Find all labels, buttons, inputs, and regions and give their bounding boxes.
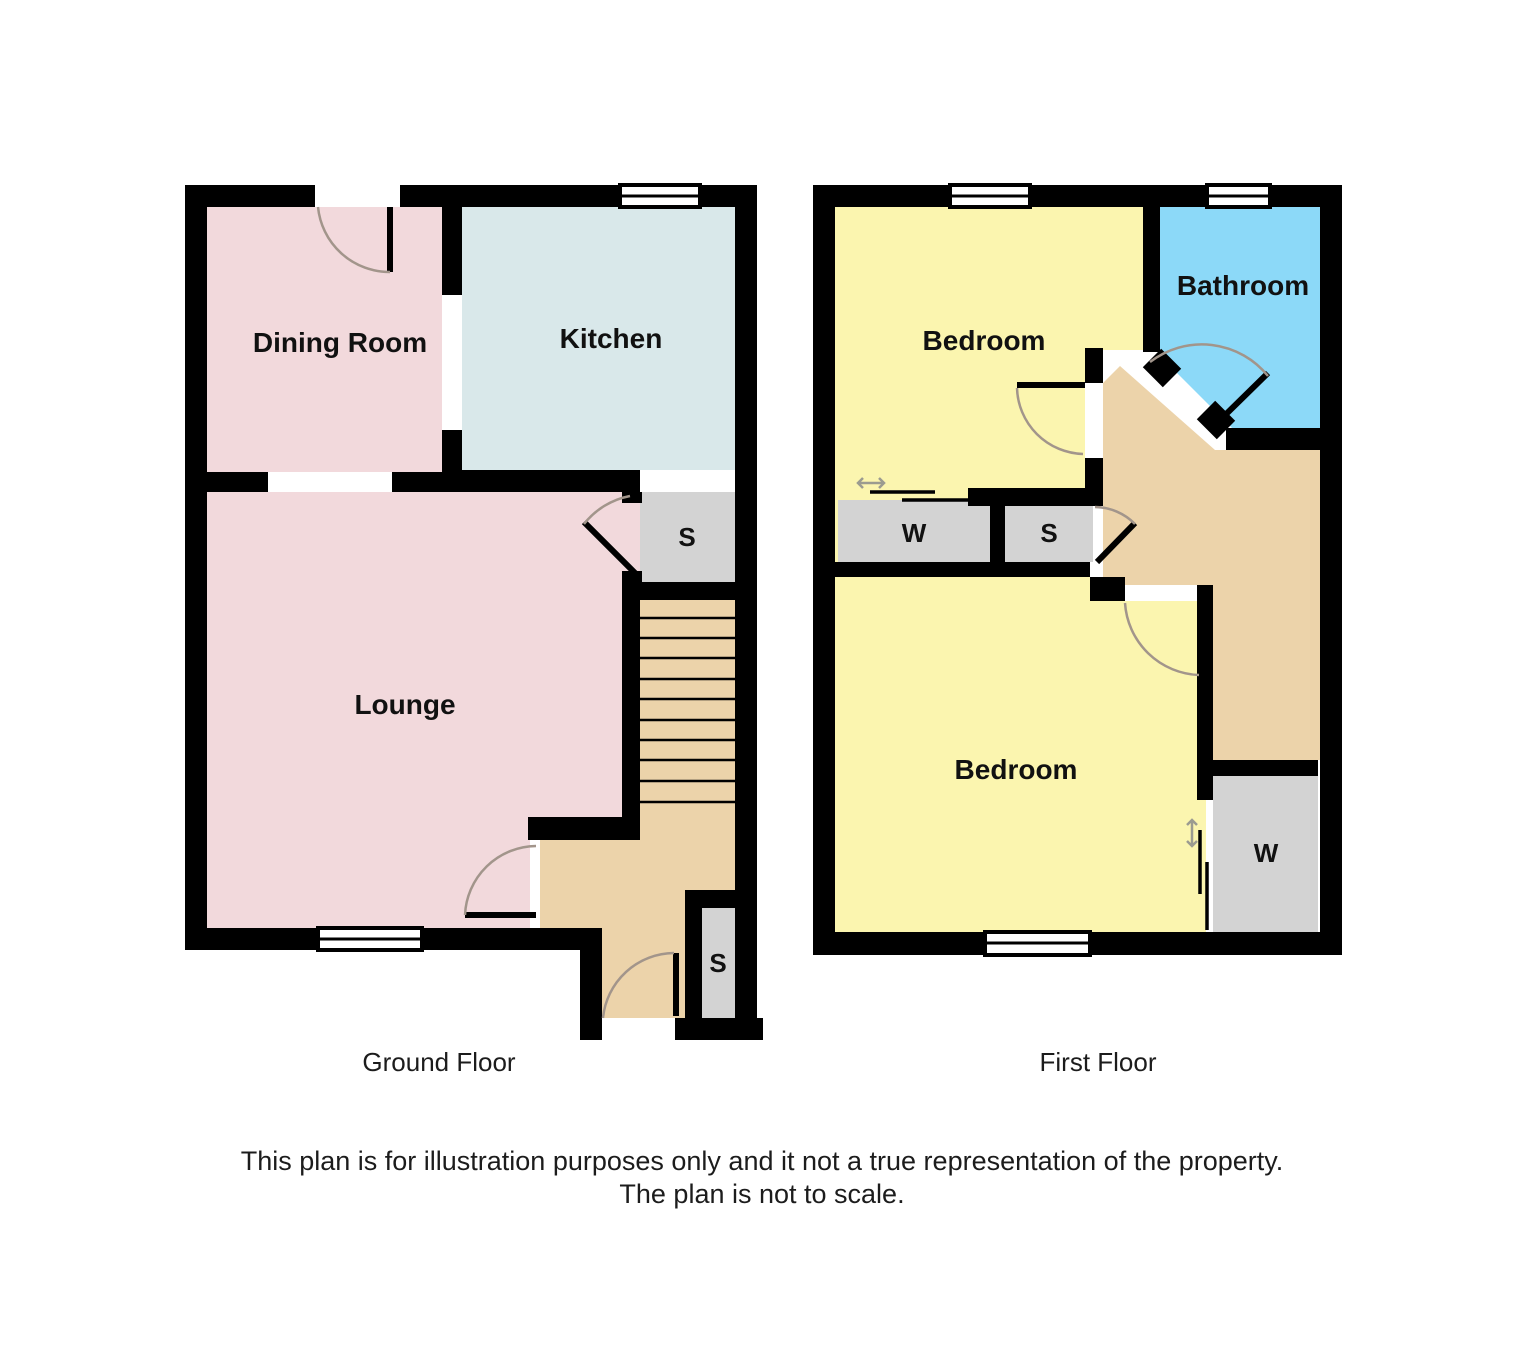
kitchen-window <box>620 185 700 207</box>
lounge-label: Lounge <box>354 689 455 720</box>
wall <box>685 890 757 908</box>
bedroom-back-label: Bedroom <box>955 754 1078 785</box>
wall <box>580 1018 602 1040</box>
wall <box>685 908 702 1018</box>
wall <box>442 430 462 472</box>
disclaimer-line-2: The plan is not to scale. <box>619 1179 904 1209</box>
first-floor-plan: Bedroom Bathroom W S Bedroom W First Flo… <box>813 185 1342 1077</box>
wall <box>1085 348 1103 383</box>
wall <box>1213 760 1318 776</box>
wall <box>207 472 268 492</box>
wardrobe-front-label: W <box>902 518 927 548</box>
bedroom-front-window <box>950 185 1030 207</box>
disclaimer-line-1: This plan is for illustration purposes o… <box>241 1146 1284 1176</box>
wall <box>392 472 462 492</box>
floorplan-drawing: Dining Room Kitchen Lounge S S Ground Fl… <box>0 0 1525 1366</box>
wall <box>622 582 640 823</box>
wall <box>400 185 757 207</box>
wall <box>1090 577 1125 601</box>
bedroom-front-label: Bedroom <box>923 325 1046 356</box>
ground-floor-caption: Ground Floor <box>362 1047 516 1077</box>
bathroom-area <box>1160 207 1320 428</box>
wall <box>990 500 1005 562</box>
storage-entry-label: S <box>709 948 726 978</box>
storage-landing-label: S <box>1040 518 1057 548</box>
wardrobe-back-label: W <box>1254 838 1279 868</box>
wall <box>735 185 757 1040</box>
wall <box>1143 207 1160 352</box>
wall <box>1152 358 1172 378</box>
wall <box>528 817 640 840</box>
wall <box>462 470 640 492</box>
wall <box>1320 185 1342 955</box>
wall <box>442 207 462 295</box>
wall <box>185 185 207 950</box>
first-floor-caption: First Floor <box>1040 1047 1157 1077</box>
wall <box>813 562 1090 577</box>
wall <box>675 1018 763 1040</box>
kitchen-label: Kitchen <box>560 323 663 354</box>
floorplan-page: Dining Room Kitchen Lounge S S Ground Fl… <box>0 0 1525 1366</box>
bathroom-label: Bathroom <box>1177 270 1309 301</box>
lounge-window <box>318 928 422 950</box>
bedroom-back-window <box>985 932 1090 955</box>
ground-floor-plan: Dining Room Kitchen Lounge S S Ground Fl… <box>185 185 763 1077</box>
wall <box>640 582 735 600</box>
dining-room-label: Dining Room <box>253 327 427 358</box>
bathroom-window <box>1207 185 1270 207</box>
storage-mid-label: S <box>678 522 695 552</box>
wall <box>968 488 1103 506</box>
wall <box>1226 428 1320 450</box>
